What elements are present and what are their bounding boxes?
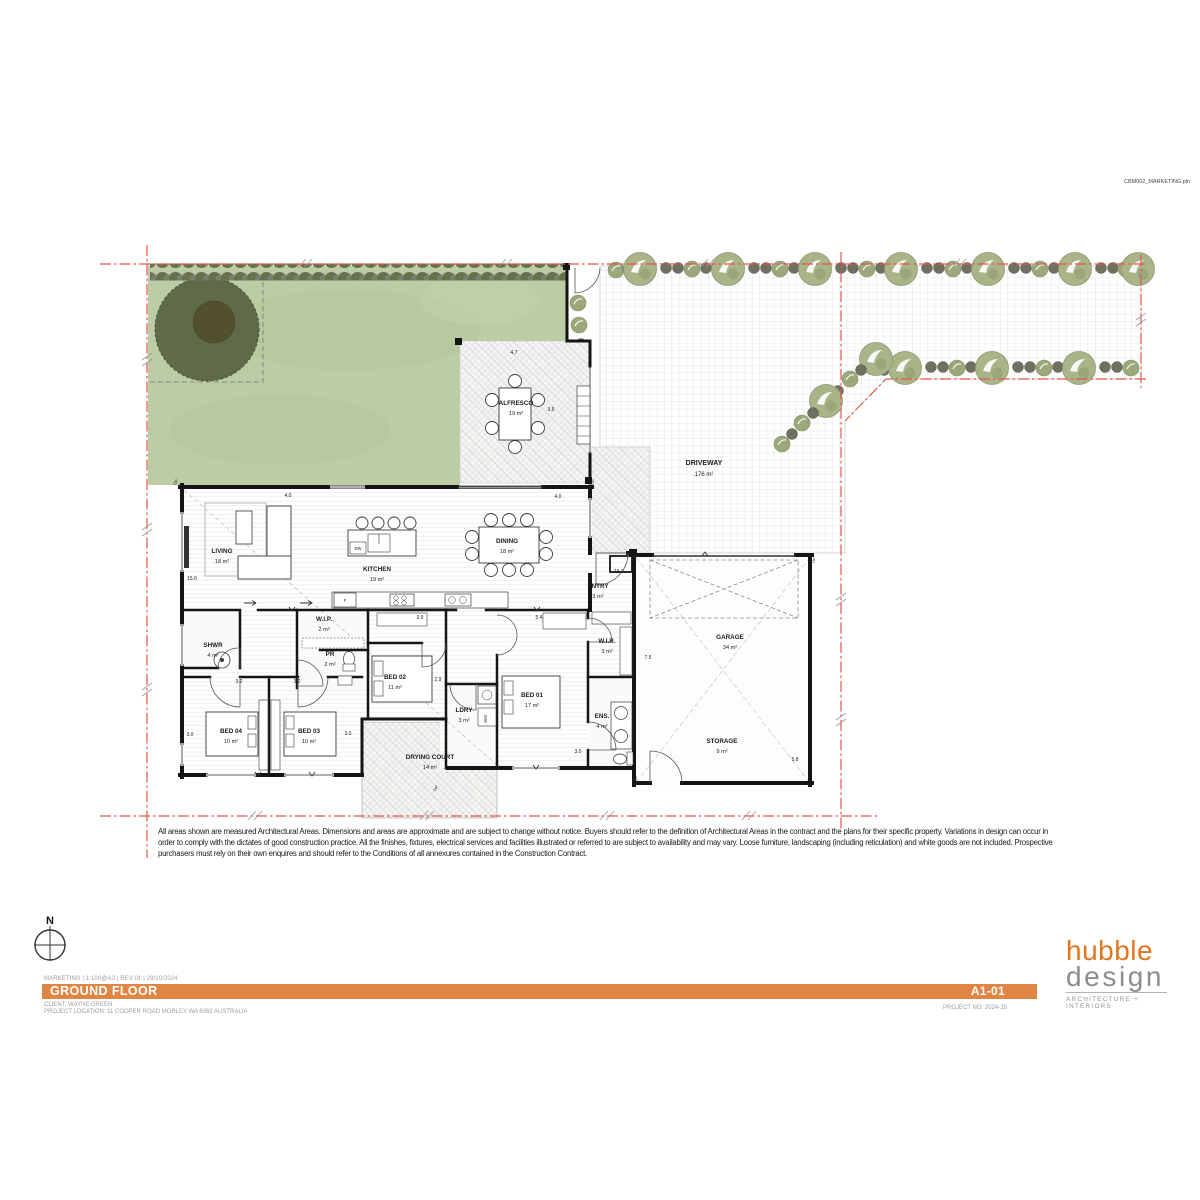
room-area: 3 m² [601,649,612,655]
hedge-row [150,264,567,281]
room-label: ENTRY [587,583,609,590]
company-logo: hubble design ARCHITECTURE + INTERIORS [1066,938,1172,1010]
room-label: DRYING COURT [406,754,455,761]
sheet-title: GROUND FLOOR [50,984,158,999]
dimension: 2.9 [435,677,442,683]
room-label: BED 02 [384,674,407,681]
room-area: 2 m² [318,627,329,633]
room-area: 11 m² [388,685,402,691]
client-name: CLIENT: WAYNE GREEN [44,1002,112,1008]
entry-porch-paving [590,447,650,553]
sheet-number: A1-01 [971,984,1005,999]
title-bar: GROUND FLOOR A1-01 [42,984,1037,999]
room-area: 19 m² [509,411,523,417]
dimension: 3.9 [417,615,424,621]
washing-machine-label: WM [483,715,488,723]
room-area: 176 m² [695,472,714,478]
dimension: 3.2 [294,679,301,685]
room-label: PR [326,651,335,658]
dimension: 3.0 [187,732,194,738]
room-label: BED 03 [298,728,321,735]
disclaimer-line-3: purchasers must rely on their own enquir… [158,849,1058,860]
room-label: LDRY [456,707,474,714]
room-area: 14 m² [423,765,437,771]
room-area: 34 m² [723,645,737,651]
dimension: 5.4 [536,615,543,621]
dimension: 7.5 [645,655,652,661]
room-label: STORAGE [706,738,737,745]
room-label: DRIVEWAY [686,460,723,467]
project-location: PROJECT LOCATION: 11 COOPER ROAD MORLEY … [44,1009,247,1015]
disclaimer-line-2: order to comply with the dictates of goo… [158,838,1058,849]
project-number: PROJECT NO: 2024-35 [943,1005,1007,1011]
dimension: 15.6 [187,576,197,582]
dimension: 4.0 [285,493,292,499]
dimension: 3.0 [345,731,352,737]
room-area: 2 m² [324,662,335,668]
room-label: BED 01 [521,692,544,699]
room-label: ENS. [595,713,610,720]
fridge-label: F [344,598,347,603]
room-label: BED 04 [220,728,243,735]
room-label: KITCHEN [363,566,391,573]
dimension: 3.2 [236,679,243,685]
room-area: 18 m² [500,549,514,555]
north-arrow: N [34,915,66,961]
logo-word-design: design [1066,964,1172,989]
room-label: W.I.R. [598,638,615,645]
room-area: 4 m² [207,653,218,659]
room-area: 9 m² [716,749,727,755]
dimension: 5.8 [792,757,799,763]
north-label: N [46,915,54,927]
room-label: SHWR [203,642,223,649]
room-area: 3 m² [458,718,469,724]
dimension: 3.6 [548,407,555,413]
revision-meta: MARKETING | 1:100@A3 | REV 01 | 29/10/20… [44,976,178,982]
room-area: 19 m² [370,577,384,583]
large-tree [155,277,259,381]
file-reference: CBM002_MARKETING.pln [1000,179,1190,185]
logo-tagline: ARCHITECTURE + INTERIORS [1066,996,1172,1010]
room-area: 3 m² [592,594,603,600]
disclaimer-text: All areas shown are measured Architectur… [158,827,1058,859]
room-area: 10 m² [224,739,238,745]
room-label: DINING [496,538,518,545]
room-area: 4 m² [596,724,607,730]
dimension: 4.7 [511,350,518,356]
room-label: ALFRESCO [499,400,534,407]
sheet: ALFRESCO 19 m² DRIVEWAY 176 m² LIVING 18… [0,0,1200,1200]
room-label: LIVING [212,548,233,555]
room-area: 10 m² [302,739,316,745]
room-label: GARAGE [716,634,744,641]
dishwasher-label: DW [355,546,362,551]
driveway-paving [600,266,1141,553]
logo-divider [1066,992,1167,993]
dimension: 3.0 [575,749,582,755]
dimension: 15.6 [614,569,624,575]
room-label: W.I.P. [316,616,332,623]
room-area: 17 m² [525,703,539,709]
dimension: 4.0 [555,494,562,500]
room-area: 18 m² [215,559,229,565]
disclaimer-line-1: All areas shown are measured Architectur… [158,827,1058,838]
